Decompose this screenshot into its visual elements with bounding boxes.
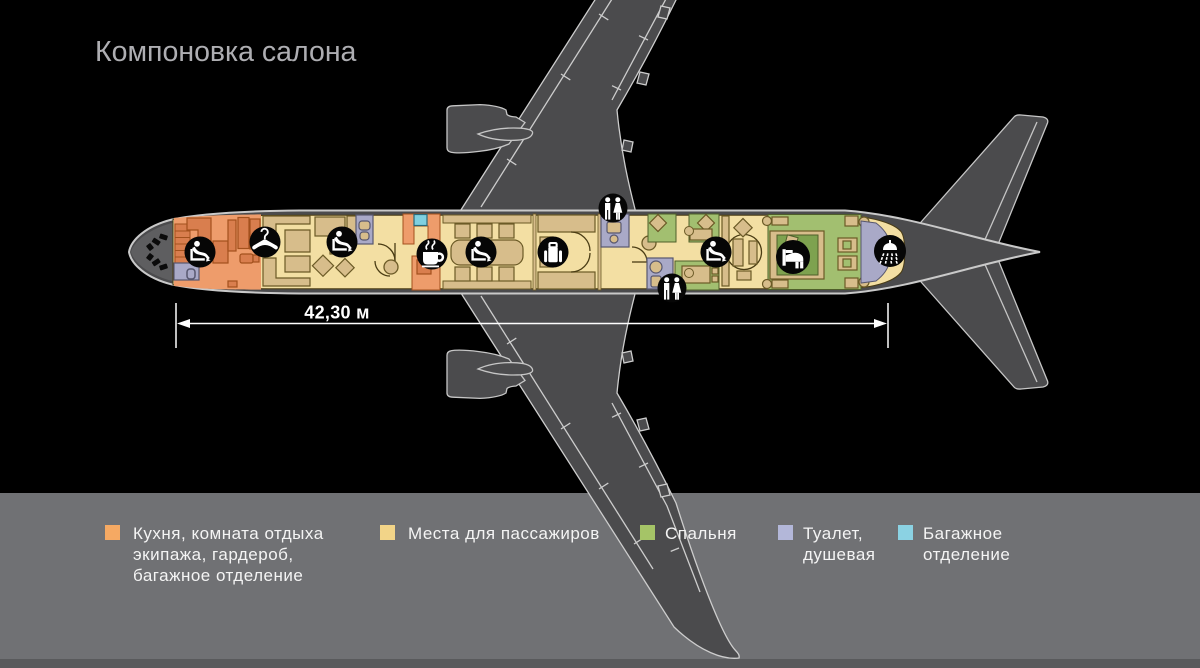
svg-text:Места для пассажиров: Места для пассажиров xyxy=(408,524,600,543)
svg-text:Багажное: Багажное xyxy=(923,524,1003,543)
svg-text:багажное отделение: багажное отделение xyxy=(133,566,303,585)
svg-text:Кухня, комната отдыха: Кухня, комната отдыха xyxy=(133,524,324,543)
svg-text:Спальня: Спальня xyxy=(665,524,737,543)
svg-text:Туалет,: Туалет, xyxy=(803,524,863,543)
svg-text:отделение: отделение xyxy=(923,545,1010,564)
svg-text:Компоновка салона: Компоновка салона xyxy=(95,36,357,68)
svg-text:экипажа, гардероб,: экипажа, гардероб, xyxy=(133,545,294,564)
svg-text:42,30 м: 42,30 м xyxy=(304,303,369,323)
svg-text:душевая: душевая xyxy=(803,545,876,564)
